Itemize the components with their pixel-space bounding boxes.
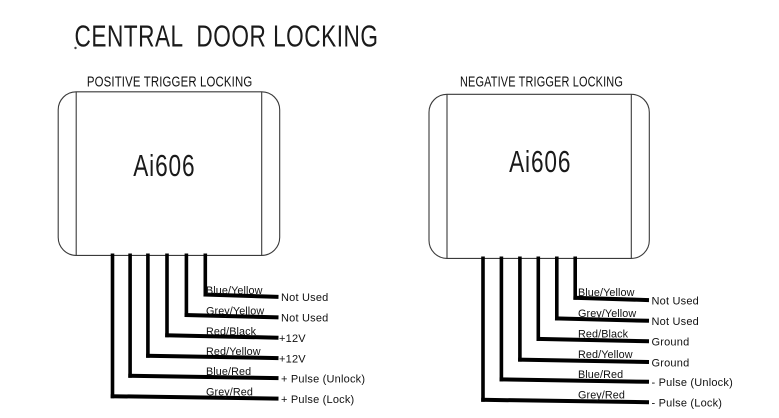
svg-text:- Pulse (Lock): - Pulse (Lock): [652, 398, 723, 410]
svg-text:POSITIVE TRIGGER LOCKING: POSITIVE TRIGGER LOCKING: [87, 73, 252, 90]
svg-text:- Pulse (Unlock): - Pulse (Unlock): [652, 377, 733, 389]
svg-text:NEGATIVE TRIGGER LOCKING: NEGATIVE TRIGGER LOCKING: [460, 73, 623, 90]
svg-text:+12V: +12V: [279, 353, 306, 365]
svg-text:CENTRAL DOOR LOCKING: CENTRAL DOOR LOCKING: [75, 18, 379, 53]
svg-text:Ground: Ground: [652, 337, 690, 349]
svg-text:Grey/Yellow: Grey/Yellow: [578, 308, 636, 320]
svg-text:Grey/Red: Grey/Red: [206, 387, 253, 399]
svg-text:Not Used: Not Used: [652, 295, 699, 307]
svg-text:Blue/Yellow: Blue/Yellow: [206, 285, 263, 297]
svg-text:Not Used: Not Used: [652, 316, 699, 328]
svg-text:Ai606: Ai606: [509, 143, 571, 178]
svg-text:Blue/Yellow: Blue/Yellow: [578, 287, 635, 299]
svg-text:+ Pulse (Unlock): + Pulse (Unlock): [281, 373, 365, 385]
svg-text:Grey/Red: Grey/Red: [578, 389, 625, 401]
svg-text:Red/Black: Red/Black: [578, 328, 629, 340]
svg-text:Not Used: Not Used: [281, 292, 328, 304]
svg-text:+ Pulse (Lock): + Pulse (Lock): [281, 394, 354, 406]
svg-text:Not Used: Not Used: [281, 313, 328, 325]
svg-text:Ai606: Ai606: [133, 147, 195, 182]
svg-text:+12V: +12V: [279, 333, 306, 345]
svg-text:Ground: Ground: [652, 357, 690, 369]
svg-text:Grey/Yellow: Grey/Yellow: [206, 306, 264, 318]
svg-text:Red/Black: Red/Black: [206, 326, 257, 338]
svg-text:Red/Yellow: Red/Yellow: [578, 349, 633, 361]
svg-text:Blue/Red: Blue/Red: [578, 369, 623, 381]
svg-text:Blue/Red: Blue/Red: [206, 366, 251, 378]
svg-text:Red/Yellow: Red/Yellow: [206, 346, 261, 358]
